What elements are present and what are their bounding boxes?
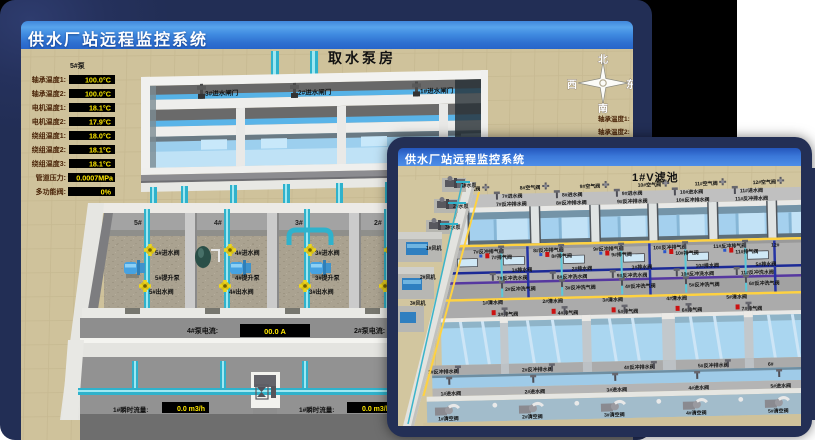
svg-text:4#出水阀: 4#出水阀 <box>229 288 254 296</box>
svg-text:11#空气阀: 11#空气阀 <box>695 180 718 188</box>
svg-text:7#排气阀: 7#排气阀 <box>491 254 512 261</box>
svg-text:1#排水阀: 1#排水阀 <box>512 266 533 273</box>
svg-text:1#瞬时流量:: 1#瞬时流量: <box>113 405 148 414</box>
svg-text:2#反冲洗气阀: 2#反冲洗气阀 <box>505 285 536 293</box>
svg-text:5#排气阀: 5#排气阀 <box>618 308 639 315</box>
svg-text:2#泵电流:: 2#泵电流: <box>354 326 385 335</box>
svg-text:17.9°C: 17.9°C <box>89 118 111 127</box>
svg-text:2#清空阀: 2#清空阀 <box>522 413 543 420</box>
svg-text:9#排气阀: 9#排气阀 <box>611 251 632 258</box>
svg-text:18.1°C: 18.1°C <box>89 146 111 155</box>
svg-text:2#风机: 2#风机 <box>420 274 436 281</box>
svg-text:电机温度1:: 电机温度1: <box>32 103 66 112</box>
svg-text:12#空气阀: 12#空气阀 <box>753 179 777 187</box>
svg-text:2#: 2# <box>374 220 382 227</box>
svg-text:0.0 m3/h: 0.0 m3/h <box>362 406 390 413</box>
svg-text:4#反冲洗气阀: 4#反冲洗气阀 <box>625 282 656 290</box>
svg-text:10#排水阀: 10#排水阀 <box>696 262 720 270</box>
svg-text:4#清空阀: 4#清空阀 <box>686 409 707 416</box>
svg-text:3#清空阀: 3#清空阀 <box>604 411 625 418</box>
svg-text:12#: 12# <box>771 242 780 248</box>
svg-text:3#进水阀: 3#进水阀 <box>315 249 340 257</box>
svg-text:7#反冲排水阀: 7#反冲排水阀 <box>496 200 527 208</box>
svg-text:管道压力:: 管道压力: <box>36 173 66 182</box>
svg-text:5#反冲洗气阀: 5#反冲洗气阀 <box>689 281 720 289</box>
svg-text:多功能阀:: 多功能阀: <box>36 187 66 196</box>
svg-text:5#清空阀: 5#清空阀 <box>768 407 789 414</box>
svg-text:绕组温度2:: 绕组温度2: <box>32 145 66 154</box>
svg-text:9#进水阀: 9#进水阀 <box>622 190 643 197</box>
svg-text:5#排水阀: 5#排水阀 <box>756 261 777 268</box>
svg-text:5#泵: 5#泵 <box>70 61 85 70</box>
svg-text:2#水泵: 2#水泵 <box>453 203 470 210</box>
svg-text:8#进水阀: 8#进水阀 <box>562 191 583 198</box>
svg-text:取水泵房: 取水泵房 <box>328 50 396 66</box>
svg-text:0%: 0% <box>101 188 112 197</box>
svg-text:11#排气阀: 11#排气阀 <box>735 248 758 256</box>
svg-text:西: 西 <box>567 79 577 91</box>
svg-text:2#清水阀: 2#清水阀 <box>542 298 563 305</box>
svg-text:5#出水阀: 5#出水阀 <box>149 288 174 296</box>
svg-text:4#进水阀: 4#进水阀 <box>688 384 709 391</box>
svg-text:5#进水阀: 5#进水阀 <box>155 249 180 257</box>
svg-text:7#排气阀: 7#排气阀 <box>742 305 763 312</box>
svg-text:3#反冲洗气阀: 3#反冲洗气阀 <box>565 284 596 292</box>
svg-text:3#进水阀: 3#进水阀 <box>606 386 627 393</box>
svg-text:18.1°C: 18.1°C <box>89 104 111 113</box>
svg-text:北: 北 <box>598 53 608 66</box>
svg-text:1#进水阀: 1#进水阀 <box>440 390 461 397</box>
svg-text:18.1°C: 18.1°C <box>89 160 111 169</box>
svg-text:东: 东 <box>626 78 633 91</box>
svg-text:10#排气阀: 10#排气阀 <box>675 249 699 257</box>
svg-text:5#清水阀: 5#清水阀 <box>726 293 747 300</box>
svg-text:0.0 m3/h: 0.0 m3/h <box>177 406 205 413</box>
svg-text:11#反冲排水阀: 11#反冲排水阀 <box>735 195 768 203</box>
svg-text:8#空气阀: 8#空气阀 <box>520 184 541 191</box>
svg-text:10#空气阀: 10#空气阀 <box>638 181 662 189</box>
svg-text:100.0°C: 100.0°C <box>85 90 111 99</box>
svg-text:3#提升泵: 3#提升泵 <box>315 274 341 282</box>
svg-text:8#反冲排水阀: 8#反冲排水阀 <box>556 199 587 207</box>
svg-text:4#: 4# <box>214 220 222 227</box>
svg-text:5#进水阀: 5#进水阀 <box>770 382 791 389</box>
svg-text:1#清空阀: 1#清空阀 <box>438 415 459 422</box>
svg-text:3#: 3# <box>295 220 303 227</box>
svg-text:1#瞬时流量:: 1#瞬时流量: <box>299 405 334 414</box>
svg-text:3#风机: 3#风机 <box>410 300 426 307</box>
svg-text:3#排气阀: 3#排气阀 <box>498 311 519 318</box>
svg-text:7#进水阀: 7#进水阀 <box>502 192 523 199</box>
svg-text:6#排气阀: 6#排气阀 <box>682 306 703 313</box>
svg-text:3#出水阀: 3#出水阀 <box>309 288 334 296</box>
svg-text:1#水泵: 1#水泵 <box>461 182 478 189</box>
svg-text:4#进水阀: 4#进水阀 <box>235 249 260 257</box>
svg-text:轴承温度1:: 轴承温度1: <box>598 114 630 123</box>
svg-text:0.0007MPa: 0.0007MPa <box>76 174 114 183</box>
svg-text:11#进水阀: 11#进水阀 <box>740 187 763 195</box>
svg-text:9#空气阀: 9#空气阀 <box>580 183 601 190</box>
svg-text:100.0°C: 100.0°C <box>85 76 111 85</box>
svg-text:4#泵电流:: 4#泵电流: <box>187 326 218 335</box>
svg-text:5#提升泵: 5#提升泵 <box>155 274 181 282</box>
svg-text:3#排水阀: 3#排水阀 <box>632 263 653 270</box>
svg-text:2#进水阀: 2#进水阀 <box>524 388 545 395</box>
svg-text:10#反冲排水阀: 10#反冲排水阀 <box>676 196 709 204</box>
svg-text:9#反冲排水阀: 9#反冲排水阀 <box>617 198 648 206</box>
svg-text:4#反冲排水阀: 4#反冲排水阀 <box>624 363 655 371</box>
svg-text:00.0 A: 00.0 A <box>264 327 286 336</box>
svg-text:1#风机: 1#风机 <box>426 245 442 252</box>
svg-text:轴承温度2:: 轴承温度2: <box>32 89 66 98</box>
svg-text:10#进水阀: 10#进水阀 <box>680 188 704 196</box>
svg-text:18.0°C: 18.0°C <box>89 132 111 141</box>
svg-text:绕组温度1:: 绕组温度1: <box>32 131 66 140</box>
svg-text:8#排气阀: 8#排气阀 <box>551 252 572 259</box>
svg-text:4#清水阀: 4#清水阀 <box>666 295 687 302</box>
svg-text:绕组温度3:: 绕组温度3: <box>32 159 66 168</box>
svg-text:1#反冲排水阀: 1#反冲排水阀 <box>428 368 459 376</box>
svg-text:轴承温度2:: 轴承温度2: <box>598 127 630 136</box>
svg-text:2#排水阀: 2#排水阀 <box>572 265 593 272</box>
svg-text:4#提升泵: 4#提升泵 <box>235 274 261 282</box>
svg-text:5#反冲排水阀: 5#反冲排水阀 <box>698 362 729 370</box>
svg-text:6#反冲洗气阀: 6#反冲洗气阀 <box>749 279 780 287</box>
svg-text:南: 南 <box>598 102 608 115</box>
svg-text:6#: 6# <box>768 362 774 368</box>
svg-text:5#: 5# <box>134 220 142 227</box>
svg-text:2#反冲排水阀: 2#反冲排水阀 <box>522 366 553 374</box>
svg-text:3#清水阀: 3#清水阀 <box>602 296 623 303</box>
svg-text:1#清水阀: 1#清水阀 <box>482 299 503 306</box>
svg-text:4#排气阀: 4#排气阀 <box>558 309 579 316</box>
svg-text:轴承温度1:: 轴承温度1: <box>32 75 66 84</box>
svg-text:电机温度2:: 电机温度2: <box>32 117 66 126</box>
